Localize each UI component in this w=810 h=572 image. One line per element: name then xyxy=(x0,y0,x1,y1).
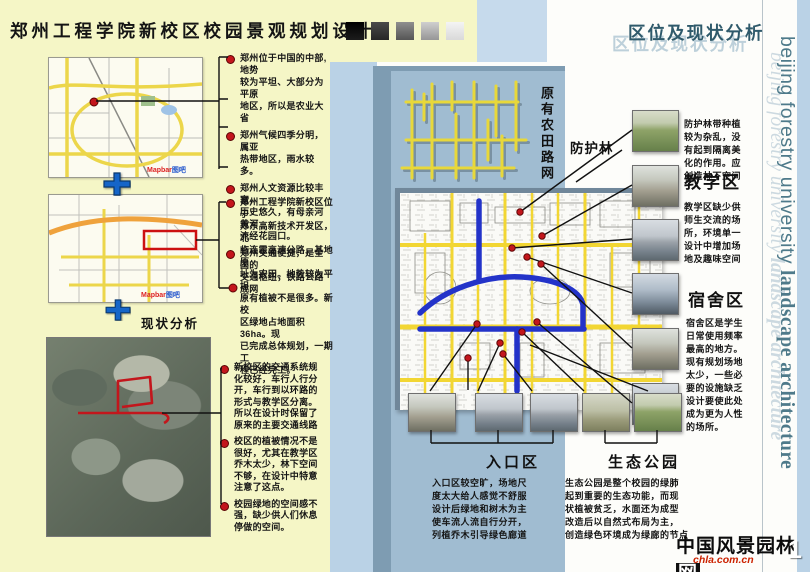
red-bullet-icon xyxy=(226,132,235,141)
status-bullet-list: 新校区的交通系统规 化较好，车行人行分 开，车行到以环路的 形式与教学区分离。 … xyxy=(220,362,328,533)
plus-icon xyxy=(105,299,131,321)
red-bullet-icon xyxy=(220,365,229,374)
list-item: 郑州位于中国的中部, 地势 较为平坦、大部分为平原 地区，所以是农业大省 xyxy=(226,52,332,124)
top-blue-block xyxy=(477,0,547,62)
dorm-zone-label: 宿舍区 xyxy=(688,286,745,311)
status-analysis-heading: 现状分析 xyxy=(141,313,199,332)
entrance-zone-text: 入口区较空旷，场地尺 度太大给人感觉不舒服 设计后绿地和树木为主 使车流人流自行… xyxy=(432,477,547,542)
teaching-zone-text: 教学区缺少供 师生交流的场 所，环境单一 设计中增加场 地及趣味空间 xyxy=(684,201,754,266)
campus-intro-block: 郑州工程学院新校区位于 郑东高新技术开发区，北 临连霍高速公路，基地原 址为农田… xyxy=(226,196,336,376)
gradient-swatch-icon xyxy=(371,22,389,40)
vertical-watermark: beijing forestry university landscape ar… xyxy=(773,36,800,469)
middle-blue-strip xyxy=(330,62,377,572)
svg-text:Mapbar图吧: Mapbar图吧 xyxy=(141,290,180,299)
photo-dormitory xyxy=(632,273,679,315)
list-item: 校区的植被情况不是 很好，尤其在教学区 乔木太少，林下空间 不够，在设计中特意 … xyxy=(220,436,328,494)
gradient-swatch-icon xyxy=(396,22,414,40)
plus-icon xyxy=(103,172,131,196)
page-number: 1 xyxy=(788,536,802,565)
section-title: 区位及现状分析 xyxy=(628,20,765,45)
photo-entrance-3 xyxy=(530,393,578,432)
photo-eco-park-2 xyxy=(634,393,682,432)
page-title: 郑州工程学院新校区校园景观规划设计 xyxy=(10,18,376,43)
photo-campus-road xyxy=(632,219,679,261)
red-bullet-icon xyxy=(220,439,229,448)
photo-teaching-area xyxy=(632,165,679,207)
campus-plan-map xyxy=(395,188,662,410)
list-item: 校园绿地的空间感不 强，缺少供人们休息 停做的空间。 xyxy=(220,499,328,534)
entrance-zone-label: 入口区 xyxy=(486,451,540,472)
photo-entrance-1 xyxy=(408,393,456,432)
svg-text:Mapbar图吧: Mapbar图吧 xyxy=(147,165,186,174)
dorm-zone-text: 宿舍区是学生 日常使用频率 最高的地方。 现有规划场地 太少，一些必 要的设施缺… xyxy=(686,317,756,434)
photo-eco-park-1 xyxy=(582,393,630,432)
farm-road-grid xyxy=(398,80,532,184)
red-bullet-icon xyxy=(220,502,229,511)
satellite-route-outline xyxy=(46,337,209,535)
gradient-swatch-icon xyxy=(446,22,464,40)
red-bullet-icon xyxy=(226,199,235,208)
red-bullet-icon xyxy=(226,55,235,64)
photo-entrance-2 xyxy=(475,393,523,432)
district-road-map: Mapbar图吧 xyxy=(48,194,203,303)
site-url: chla.com.cn xyxy=(693,554,754,566)
red-bullet-icon xyxy=(226,185,235,194)
city-road-map: Mapbar图吧 xyxy=(48,57,203,178)
teaching-zone-label: 教学区 xyxy=(684,168,741,193)
shelter-belt-label: 防护林 xyxy=(570,137,614,157)
gradient-swatch-icon xyxy=(421,22,439,40)
photo-shelter-belt xyxy=(632,110,679,152)
gradient-swatch-icon xyxy=(346,22,364,40)
design-board: 郑州工程学院新校区校园景观规划设计 区位及现状分析 区位及现状分析 beijin… xyxy=(0,0,810,572)
list-item: 郑州气候四季分明，属亚 热带地区，雨水较多。 xyxy=(226,129,332,177)
farm-grid-label: 原有农田路网 xyxy=(537,86,556,182)
eco-park-label: 生态公园 xyxy=(608,451,680,472)
list-item: 新校区的交通系统规 化较好，车行人行分 开，车行到以环路的 形式与教学区分离。 … xyxy=(220,362,328,431)
photo-dorm-blocks xyxy=(632,328,679,370)
